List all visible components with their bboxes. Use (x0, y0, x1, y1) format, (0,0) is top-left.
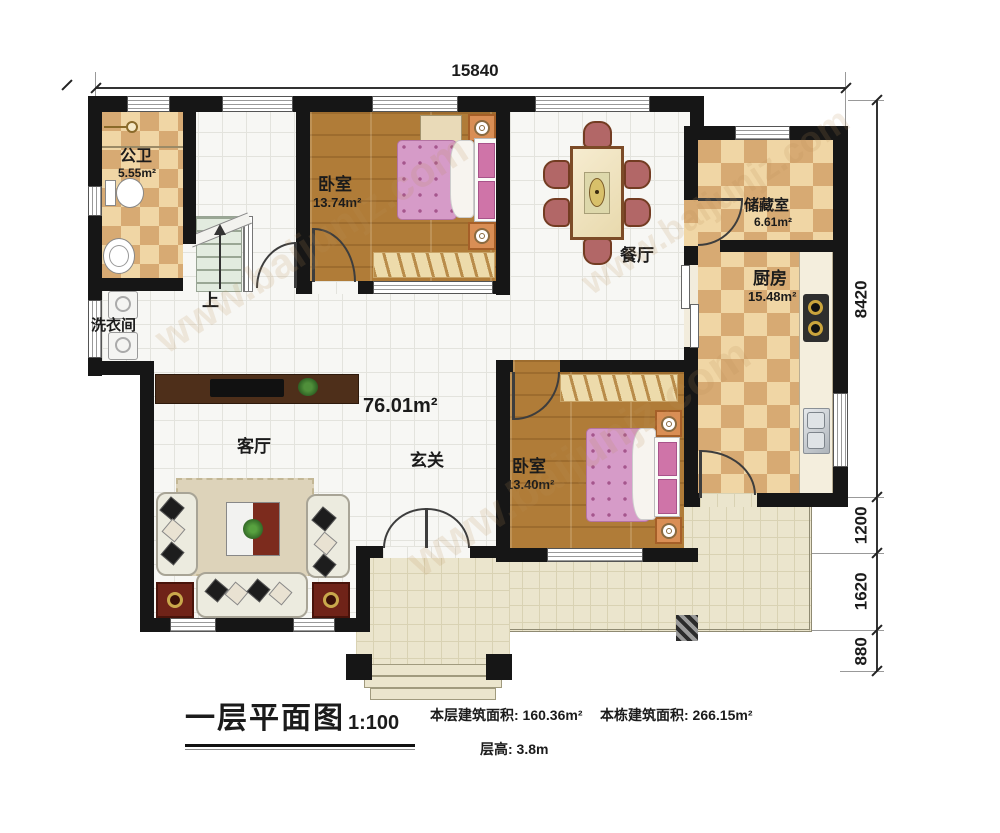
laundry-label: 洗衣间 (91, 318, 136, 335)
dining-chair-right-1 (624, 160, 651, 189)
entry-porch (356, 556, 510, 666)
window-bathroom-left (88, 186, 102, 216)
window-bedroom2-bottom (547, 548, 643, 562)
opening-storage-door (684, 200, 698, 246)
bedroom2-headboard-panel-2 (658, 479, 677, 514)
dimension-right-1620: 1620 (853, 561, 872, 621)
dimension-top-label: 15840 (440, 62, 510, 81)
stair-railing (243, 216, 253, 292)
window-top-bedroom1 (372, 96, 458, 112)
bathroom-area: 5.55m² (118, 167, 156, 180)
witness-top-left (95, 72, 96, 96)
kitchen-door-leaf (699, 450, 702, 498)
toilet-tank (105, 180, 116, 206)
plan-scale: 1:100 (348, 712, 399, 734)
plan-title: 一层平面图 (185, 702, 345, 735)
floor-plan-canvas: 公卫 5.55m² 卧室 13.74m² 餐厅 储藏室 6.61m² 厨房 15… (0, 0, 1000, 833)
bedroom2-lamp-bottom (661, 523, 677, 539)
bedroom1-label: 卧室 (318, 176, 352, 195)
kitchen-area: 15.48m² (748, 290, 796, 304)
window-living-bottom-1 (170, 618, 216, 632)
stove-burner-top (808, 300, 823, 315)
shower-arm-icon (104, 126, 128, 128)
washing-machine-2-door (115, 337, 131, 353)
stair-arrow-head (214, 224, 226, 235)
bedroom1-door-leaf (312, 228, 315, 282)
porch-column-left (346, 654, 372, 680)
bedroom1-lamp-bottom (474, 228, 490, 244)
dimension-line-right (876, 100, 878, 672)
storage-label: 储藏室 (744, 198, 789, 215)
stairs-up-label: 上 (202, 292, 219, 311)
witness-right-1 (848, 100, 884, 101)
window-kitchen-right (833, 393, 848, 467)
porch-step-2 (364, 676, 502, 688)
wall-storage-kitchen-divider (720, 240, 848, 252)
wall-bedroom1-right (496, 112, 510, 295)
bedroom1-area: 13.74m² (313, 196, 361, 210)
window-storage-top (735, 126, 790, 140)
exterior-patch (80, 375, 140, 635)
storage-door-leaf (698, 198, 743, 201)
bathroom-label: 公卫 (120, 148, 152, 166)
opening-bedroom1-door (312, 281, 358, 294)
bedroom2-rug (560, 374, 678, 402)
kitchen-counter (799, 250, 833, 495)
bedroom2-bed-sheet (632, 428, 656, 520)
stove-burner-bottom (808, 321, 823, 336)
wall-living-left (140, 361, 154, 632)
floor-height-note: 层高: 3.8m (480, 742, 548, 757)
bathroom-sink-bowl (109, 245, 129, 267)
bedroom2-lamp-top (661, 416, 677, 432)
tv-plant (298, 378, 318, 396)
toilet-bowl (116, 178, 144, 208)
terrace-hatch-marker (676, 615, 698, 641)
window-top-dining (535, 96, 650, 112)
sink-basin-top (807, 412, 825, 429)
title-underline (185, 744, 415, 751)
wall-bathroom-bottom (88, 278, 183, 291)
bedroom1-bed-sheet (450, 140, 474, 218)
dimension-right-1200: 1200 (853, 495, 872, 555)
dining-chair-top (583, 121, 612, 148)
tv (210, 379, 284, 397)
kitchen-slider-panel-1 (681, 265, 690, 309)
washing-machine-1-door (115, 296, 131, 312)
kitchen-slider-panel-2 (690, 304, 699, 348)
bathroom-door-leaf (294, 242, 297, 288)
bedroom2-headboard-panel-1 (658, 442, 677, 476)
total-area-note: 本栋建筑面积: 266.15m² (600, 708, 752, 723)
bedroom1-lamp-top (474, 120, 490, 136)
floor-area-note: 本层建筑面积: 160.36m² (430, 708, 582, 723)
wall-bedroom1-left (296, 112, 310, 282)
open-area-label: 76.01m² (363, 395, 438, 417)
wall-bedroom2-left (496, 360, 510, 562)
dining-label: 餐厅 (620, 247, 654, 266)
porch-column-right (486, 654, 512, 680)
bedroom1-dresser (420, 115, 462, 143)
wall-entry-vertical (356, 546, 370, 632)
window-bedroom1-bottom (373, 281, 493, 294)
storage-area: 6.61m² (754, 216, 792, 229)
window-top-stairhall (222, 96, 293, 112)
stair-arrow-line (219, 234, 221, 289)
bedroom2-door-leaf (512, 372, 515, 420)
dining-chair-left-1 (543, 160, 570, 189)
opening-kitchen-door (700, 493, 757, 507)
bedroom1-headboard-panel-2 (478, 181, 495, 219)
dining-chair-left-2 (543, 198, 570, 227)
porch-step-3 (370, 688, 496, 700)
wall-bathroom-right (183, 112, 196, 244)
dining-chair-bottom (583, 238, 612, 265)
foyer-label: 玄关 (410, 452, 444, 471)
window-living-bottom-2 (293, 618, 335, 632)
witness-top-right (845, 72, 846, 126)
bedroom2-area: 13.40m² (506, 478, 554, 492)
side-table-left-ring (167, 592, 183, 608)
bedroom1-headboard-panel-1 (478, 143, 495, 178)
dimension-right-880: 880 (853, 621, 872, 681)
bedroom1-bed-quilt (397, 140, 457, 220)
bedroom2-label: 卧室 (512, 458, 546, 477)
kitchen-label: 厨房 (753, 270, 787, 289)
window-top-bathroom (127, 96, 170, 112)
living-label: 客厅 (237, 438, 271, 457)
dimension-right-8420: 8420 (853, 269, 872, 329)
entry-door-leaf (425, 508, 428, 548)
tick-top-outer (61, 79, 72, 90)
bedroom1-rug (373, 252, 495, 278)
opening-bedroom2-door (513, 360, 560, 372)
sink-basin-bottom (807, 432, 825, 449)
dimension-line-top (95, 87, 845, 89)
coffee-table-plant (243, 519, 263, 539)
side-table-right-ring (323, 592, 339, 608)
dining-chair-right-2 (624, 198, 651, 227)
dining-centerpiece-dot (595, 190, 599, 194)
